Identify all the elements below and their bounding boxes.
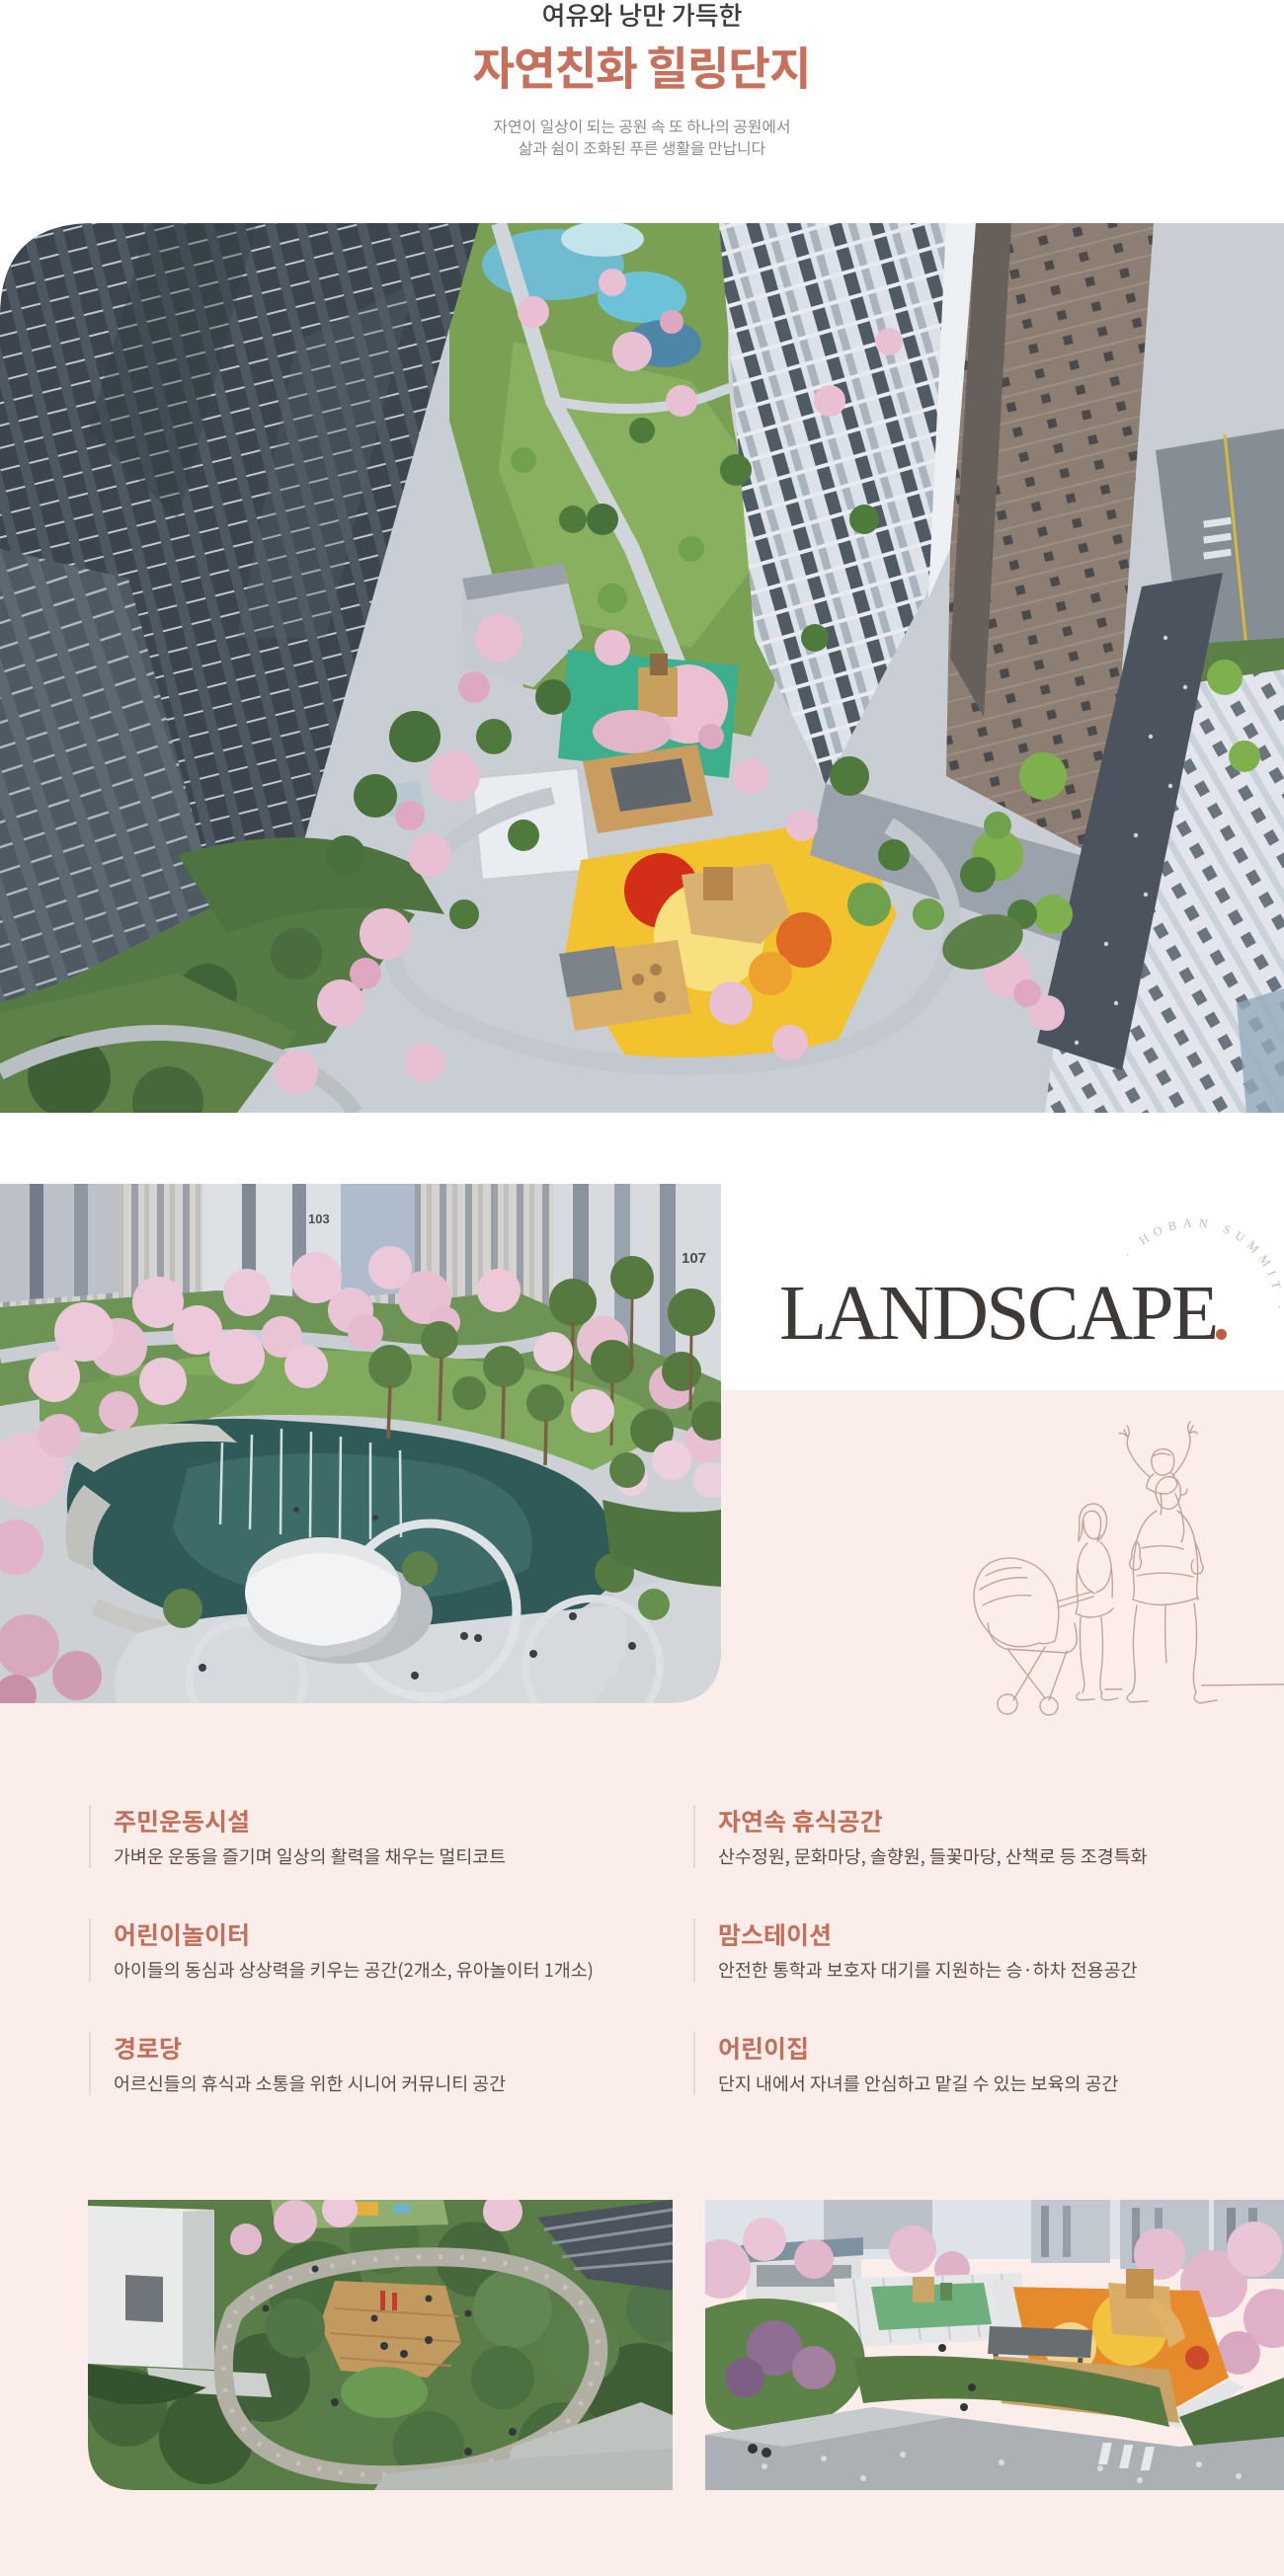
svg-text:103: 103 [308,1211,330,1226]
svg-text:107: 107 [682,1250,706,1267]
svg-text:· HOBAN SUMMIT ·: · HOBAN SUMMIT · [1121,1216,1284,1315]
